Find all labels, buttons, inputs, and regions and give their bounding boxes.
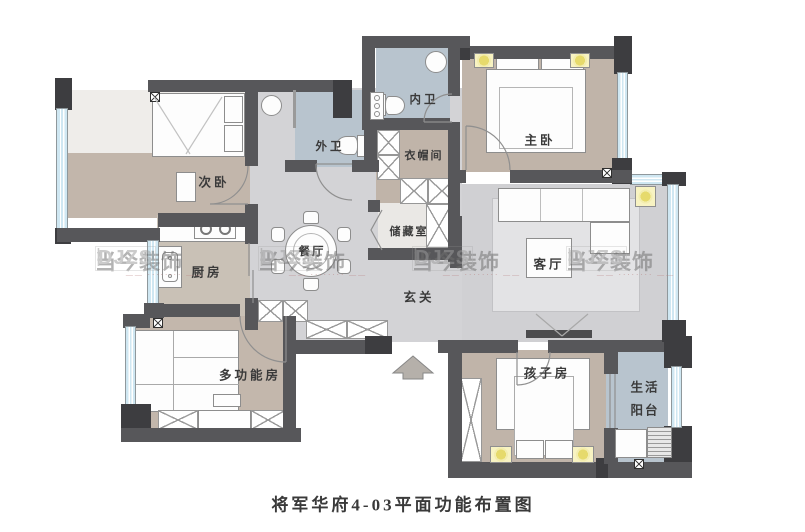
flue-symbol <box>634 459 644 469</box>
wall <box>55 78 72 110</box>
wall <box>333 80 352 118</box>
wall <box>448 46 460 96</box>
tatami-line <box>173 331 174 411</box>
sofa <box>498 188 630 222</box>
flue-symbol <box>602 168 612 178</box>
wall <box>548 340 610 353</box>
nightstand <box>176 172 196 202</box>
watermark-latin: DJZS <box>95 246 156 271</box>
room-label-secondary-bedroom: 次卧 <box>198 172 229 191</box>
chair <box>303 278 319 291</box>
toilet-bowl <box>385 96 405 115</box>
wall <box>148 304 240 317</box>
wardrobe <box>460 378 482 462</box>
floor-plan: 次卧 厨房 餐厅 外卫 内卫 衣帽间 储藏室 主卧 客厅 玄关 多功能房 孩子房… <box>0 0 805 532</box>
room-label-inner-bath: 内卫 <box>410 91 439 107</box>
wall <box>368 200 380 212</box>
tv-console <box>526 330 592 338</box>
wall <box>352 160 379 172</box>
room-label-entry-hall: 玄关 <box>403 287 434 306</box>
wall <box>283 316 296 442</box>
window-master-bedroom <box>617 72 628 160</box>
chair <box>337 227 351 242</box>
room-label-storage: 储藏室 <box>390 223 429 239</box>
room-label-outer-bath: 外卫 <box>316 138 345 154</box>
wall <box>121 428 301 442</box>
watermark-latin: DJZS <box>258 246 319 271</box>
closet <box>377 130 400 155</box>
wall <box>448 462 614 478</box>
closet <box>377 155 400 180</box>
wash-basin <box>425 51 447 73</box>
chair <box>303 211 319 224</box>
wall <box>245 298 258 330</box>
ceiling-light <box>635 186 656 207</box>
tatami-line <box>174 357 238 358</box>
window-living-room-top <box>630 174 666 185</box>
cabinet <box>306 320 347 339</box>
cabinet <box>258 300 283 322</box>
wall <box>608 462 692 478</box>
watermark-latin: DJZS <box>412 246 473 271</box>
chair <box>271 227 285 242</box>
wall <box>158 213 258 227</box>
wall <box>121 404 151 430</box>
window-secondary-bedroom <box>56 108 68 230</box>
wall <box>510 170 632 183</box>
wall <box>365 336 392 354</box>
balcony-line2: 阳台 <box>630 399 659 422</box>
wall <box>245 80 258 166</box>
ceiling-light <box>570 53 590 68</box>
wall <box>610 340 668 352</box>
watermark-tagline: —— ········ —— <box>597 271 675 279</box>
entrance-arrow <box>393 356 433 379</box>
plan-caption: 将军华府4-03平面功能布置图 <box>271 491 534 516</box>
room-label-kids-room: 孩子房 <box>524 363 571 382</box>
tatami-line <box>134 384 239 385</box>
sofa-seam <box>582 189 583 221</box>
ceiling-light <box>474 53 494 68</box>
pillow <box>516 440 544 459</box>
watermark-tagline: —— ········ —— <box>443 271 521 279</box>
wall <box>604 352 618 374</box>
watermark-tagline: —— ········ —— <box>289 271 367 279</box>
cabinet <box>251 410 285 430</box>
laundry-sink <box>615 429 647 458</box>
room-label-multifunction: 多功能房 <box>219 365 281 384</box>
pillow <box>224 96 243 123</box>
window-balcony <box>671 366 682 428</box>
cabinet <box>158 410 198 430</box>
flue-symbol <box>150 92 160 102</box>
room-label-master-bedroom: 主卧 <box>524 130 555 149</box>
ceiling-light <box>572 446 594 463</box>
pillow <box>224 125 243 152</box>
washing-machine <box>647 427 672 458</box>
pillow <box>545 440 573 459</box>
wall <box>452 170 466 183</box>
cabinet <box>198 410 251 430</box>
wall <box>57 228 160 242</box>
wall-thin <box>293 90 296 128</box>
room-label-balcony: 生活 阳台 <box>630 377 659 422</box>
ceiling-light <box>490 446 512 463</box>
wall <box>283 340 369 354</box>
window-multifunction <box>125 326 136 406</box>
room-label-cloakroom: 衣帽间 <box>405 147 444 163</box>
flue-symbol <box>153 318 163 328</box>
balcony-line1: 生活 <box>630 377 659 400</box>
room-label-living-room: 客厅 <box>533 254 564 273</box>
wash-basin <box>261 95 282 116</box>
window-living-room-side <box>667 184 679 324</box>
sofa-seam <box>540 189 541 221</box>
wall <box>285 160 317 172</box>
wall-shelf <box>370 92 384 120</box>
wall <box>448 352 462 476</box>
wall <box>614 36 632 74</box>
watermark-latin: DJZS <box>566 246 627 271</box>
side-table <box>213 394 241 407</box>
watermark-tagline: —— ········ —— <box>126 271 204 279</box>
wall <box>662 320 686 342</box>
closet <box>400 178 428 204</box>
